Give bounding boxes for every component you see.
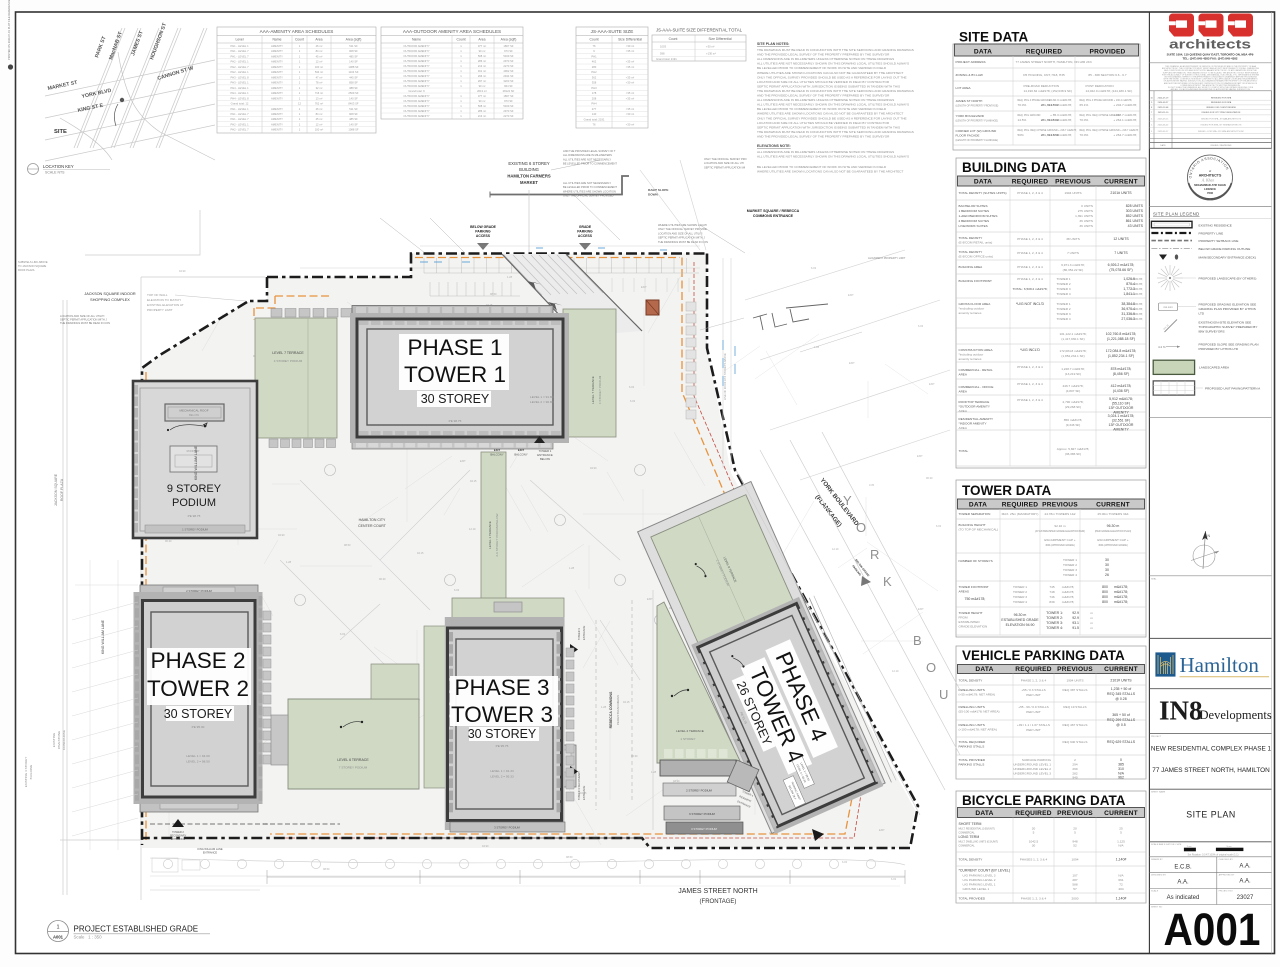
svg-text:ONLY THE OFFICIAL SURVEY PROVI: ONLY THE OFFICIAL SURVEY PROVIDED [563,194,614,198]
svg-text:UNDERGROUND LEVEL 1: UNDERGROUND LEVEL 1 [1013,763,1051,767]
svg-text:<30 m²: <30 m² [626,44,635,48]
svg-text:(>100 m&#178; NET AREA): (>100 m&#178; NET AREA) [959,728,997,732]
svg-text:<35 m²: <35 m² [626,107,635,111]
svg-text:377 m²: 377 m² [478,94,486,98]
svg-text:SHEET NO: SHEET NO [1151,907,1162,909]
svg-text:800: 800 [1102,595,1108,599]
svg-text:2973 SF: 2973 SF [503,59,514,63]
svg-text:5: 5 [1151,125,1152,127]
svg-text:TOWER 1: TOWER 1 [1057,277,1071,281]
svg-text:1094: 1094 [1072,858,1079,862]
svg-text:MARKET: MARKET [520,180,538,185]
svg-text:30 STOREY: 30 STOREY [421,392,490,406]
svg-text:2: 2 [1074,758,1076,762]
svg-text:amenity terraces: amenity terraces [959,357,982,361]
svg-text:ARCHITECTS: ARCHITECTS [1199,174,1222,178]
svg-text:LEVEL 2 TERRACE: LEVEL 2 TERRACE [676,729,704,733]
svg-text:PROJECT ESTABLISHED GRADE: PROJECT ESTABLISHED GRADE [74,925,199,934]
svg-text:BE LEVELLED PRIOR TO COMMENCEM: BE LEVELLED PRIOR TO COMMENCEMENT [563,162,617,166]
svg-text:(32,551 SF): (32,551 SF) [1112,419,1130,423]
svg-text:TOTAL: 6,508.2 m&#178;: TOTAL: 6,508.2 m&#178; [1013,287,1048,291]
svg-text:A001: A001 [53,935,64,940]
svg-text:0 UNITS: 0 UNITS [1081,204,1093,208]
svg-text:FLOOR FACADE: FLOOR FACADE [956,134,980,138]
svg-text:TOWER HEIGHT: TOWER HEIGHT [959,611,983,615]
svg-text:PROPOSED SLOPE SEE GRADING PLA: PROPOSED SLOPE SEE GRADING PLAN [1199,343,1259,347]
svg-text:45 m²: 45 m² [316,54,323,58]
svg-text:REISSUED FOR SPA: REISSUED FOR SPA [1211,96,1232,99]
svg-text:DWELLING UNITS: DWELLING UNITS [959,723,985,727]
svg-text:THE DRAWINGS MUST BE READ IN C: THE DRAWINGS MUST BE READ IN CONJUNCTION… [757,48,914,52]
svg-text:30: 30 [1105,568,1109,572]
svg-text:297 m²: 297 m² [478,79,486,83]
svg-text:828 UNITS: 828 UNITS [1126,204,1144,208]
svg-text:30: 30 [1105,563,1109,567]
svg-text:TOTAL PROVIDED: TOTAL PROVIDED [959,897,986,901]
svg-text:BE LEVELLED PRIOR TO COMMENCEM: BE LEVELLED PRIOR TO COMMENCEMENT [563,185,617,189]
svg-text:+99 / 1.1 / 1.07 STALLS: +99 / 1.1 / 1.07 STALLS [1017,723,1050,727]
svg-text:5: 5 [1074,831,1076,835]
svg-text:TOWER 3: TOWER 3 [1063,568,1077,572]
svg-text:BACHELOR SUITES: BACHELOR SUITES [959,204,988,208]
svg-text:TOWER 1: TOWER 1 [1063,558,1077,562]
svg-text:TOTAL DENSITY: TOTAL DENSITY [959,250,983,254]
svg-text:100 m²: 100 m² [315,65,323,69]
svg-text:m&#178;: m&#178; [1114,585,1128,589]
svg-text:12.19: 12.19 [832,547,839,551]
svg-text:LEVEL 7 TERRACE: LEVEL 7 TERRACE [591,376,595,404]
svg-text:PROPERTY LIMIT: PROPERTY LIMIT [147,308,173,312]
svg-text:1 BEDROOM SUITES: 1 BEDROOM SUITES [959,209,990,213]
svg-text:EXIT: EXIT [518,448,525,452]
svg-text:7606: 7606 [1207,191,1213,195]
svg-text:76: 76 [593,123,596,127]
svg-text:14.5%: 14.5% [1018,118,1027,122]
svg-text:TEL: (347) 845-4383 FAX: (347: TEL: (347) 845-4383 FAX: (347) 845-4382 [1183,57,1238,61]
svg-text:TOWER 3: TOWER 3 [1013,595,1027,599]
svg-text:7: 7 [1151,112,1152,114]
svg-text:TOWER 2: TOWER 2 [1057,307,1071,311]
svg-text:THE DRAWINGS MUST BE READ IN C: THE DRAWINGS MUST BE READ IN CON [60,321,110,325]
svg-text:PROJECT ADDRESS: PROJECT ADDRESS [956,60,986,64]
svg-text:Grand total: 9: Grand total: 9 [408,89,425,93]
svg-text:5: 5 [1033,831,1035,835]
svg-text:Grand total: 2191: Grand total: 2191 [584,117,605,121]
svg-text:30: 30 [1105,558,1109,562]
svg-text:8: 8 [1151,107,1152,109]
svg-text:TOWER 3: TOWER 3 [451,702,553,727]
svg-text:SITE PLAN LEGEND: SITE PLAN LEGEND [1153,212,1200,217]
svg-text:MOHAMMAD ATIF KHAN: MOHAMMAD ATIF KHAN [1194,183,1226,187]
svg-text:ALL DIMENSIONS ARE IN MILLIMET: ALL DIMENSIONS ARE IN MILLIMETERS UNLESS… [757,98,894,102]
svg-text:PH1 - LEVEL 7: PH1 - LEVEL 7 [230,54,249,58]
svg-text:JS-AAA-SUITE SIZE DIFFERENTIAL: JS-AAA-SUITE SIZE DIFFERENTIAL TOTAL [656,28,743,33]
svg-text:TOWER SEPARATION: TOWER SEPARATION [959,512,991,516]
svg-text:1+DEN BEDROOM SUITES: 1+DEN BEDROOM SUITES [959,214,998,218]
svg-text:85 - 368 SECTION 6.6 - 6.7: 85 - 368 SECTION 6.6 - 6.7 [1088,73,1126,77]
svg-text:REBECCA COMMONS: REBECCA COMMONS [609,691,613,728]
svg-text:TOTAL DENSITY: TOTAL DENSITY [959,858,983,862]
svg-text:(E-B'COM RETAIL units): (E-B'COM RETAIL units) [959,241,993,245]
svg-text:PH3 - LEVEL 8: PH3 - LEVEL 8 [230,75,249,79]
svg-text:(TO TOP OF MECHANICAL): (TO TOP OF MECHANICAL) [959,528,999,532]
svg-text:REQ. PKG. REQ 4 PHASE GROUND: REQ. PKG. REQ 4 PHASE GROUND + 218.7 m&#… [1080,129,1139,132]
svg-text:GRADE: GRADE [579,225,592,229]
svg-text:94.90: 94.90 [482,844,489,848]
svg-text:6.03: 6.03 [630,399,636,403]
svg-text:SITE DATA: SITE DATA [959,30,1028,45]
svg-text:30: 30 [1032,844,1036,848]
svg-text:2023-11-10: 2023-11-10 [1158,112,1169,114]
svg-text:(<55 m&#178; NET AREA): (<55 m&#178; NET AREA) [959,693,996,697]
svg-text:OUTDOOR AMENITY: OUTDOOR AMENITY [403,49,429,53]
svg-text:TOWER 3:: TOWER 3: [1046,621,1063,625]
svg-text:6.03: 6.03 [629,385,635,389]
svg-text:PHASE 1, 2, 3 & 4: PHASE 1, 2, 3 & 4 [1017,237,1043,241]
svg-text:m&#178;: m&#178; [1114,600,1128,604]
svg-text:1,235 + 50 of: 1,235 + 50 of [1111,687,1132,691]
svg-text:Count: Count [589,38,598,42]
svg-text:AND THE PROVIDED LEGAL SURVEY: AND THE PROVIDED LEGAL SURVEY OF THE PRO… [757,134,890,138]
svg-text:U: U [939,687,948,702]
svg-text:ALL UTILITIES ARE NOT NECESSAR: ALL UTILITIES ARE NOT NECESSARILY SHOWN … [757,155,909,159]
svg-text:4 STOREY PODIUM: 4 STOREY PODIUM [598,375,602,404]
svg-text:+ 128.5 m&#178;: + 128.5 m&#178; [1048,133,1072,137]
svg-text:TOTAL REQUIRED: TOTAL REQUIRED [959,740,987,744]
svg-text:+130 m²: +130 m² [706,52,716,56]
svg-text:AND THE PROVIDED LEGAL SURVEY: AND THE PROVIDED LEGAL SURVEY OF THE PRO… [757,53,890,57]
svg-text:*U/G INCL'D: *U/G INCL'D [1020,348,1040,352]
svg-text:REQ 940 STALLS: REQ 940 STALLS [1063,740,1088,744]
svg-text:(PER GRADE ELEVATION PLAN): (PER GRADE ELEVATION PLAN) [1095,530,1132,533]
svg-text:OUTDOOR AMENITY: OUTDOOR AMENITY [403,84,429,88]
svg-text:ESCARPMENT CAP +: ESCARPMENT CAP + [1097,538,1128,542]
svg-text:Y: Y [843,493,852,508]
svg-text:ACCESS: ACCESS [578,234,593,238]
svg-text:TOPOGRAPHIC SURVEY PREPARED BY: TOPOGRAPHIC SURVEY PREPARED BY [1199,325,1258,329]
svg-text:CONSTRUCTION AREA: CONSTRUCTION AREA [959,348,994,352]
svg-text:Grand total: 2191: Grand total: 2191 [656,57,677,61]
svg-text:14,022.0 m&#178; (144,180.1 SF: 14,022.0 m&#178; (144,180.1 SF) [1086,89,1133,93]
svg-text:2101# UNITS: 2101# UNITS [1110,679,1132,683]
svg-text:DATA: DATA [975,810,993,817]
svg-text:ZONING & BY-LAW: ZONING & BY-LAW [956,73,983,77]
svg-text:13 m²: 13 m² [316,96,323,100]
svg-text:DESIGNED BY: DESIGNED BY [1151,875,1166,877]
svg-text:REQUIRED: REQUIRED [1002,501,1038,508]
svg-text:EXIT: EXIT [879,828,885,832]
svg-text:PRE-ROAD DEDUCTION: PRE-ROAD DEDUCTION [1024,84,1060,88]
svg-text:92.9: 92.9 [1072,616,1079,620]
svg-text:EXIT: EXIT [460,459,466,463]
svg-text:973 SF: 973 SF [504,99,513,103]
svg-text:GROUND LEVEL 1: GROUND LEVEL 1 [963,887,990,891]
svg-text:28122 SF: 28122 SF [503,89,515,93]
svg-text:REQ 345 STALLS: REQ 345 STALLS [1107,692,1136,696]
svg-text:CURRENT: CURRENT [1104,810,1138,817]
svg-text:m&#178;: m&#178; [1131,277,1144,281]
svg-text:Area (sqft): Area (sqft) [346,38,362,42]
svg-text:U/G PARKING LEVEL 2: U/G PARKING LEVEL 2 [963,878,996,882]
svg-text:@ 0.28: @ 0.28 [1115,697,1126,701]
svg-text:TOWER 2: TOWER 2 [147,676,249,701]
svg-text:ENTRANCE: ENTRANCE [582,625,586,640]
svg-text:2944 SF: 2944 SF [503,74,514,78]
svg-text:REQ. PKG 4 PHASE GROUND + 130: REQ. PKG 4 PHASE GROUND + 130.4 m&#178; [1080,99,1133,102]
svg-text:AMENITY: AMENITY [271,128,283,132]
svg-text:277: 277 [592,107,597,111]
svg-text:4962 SF: 4962 SF [503,69,514,73]
svg-text:LOCATION AND SIZE OF ALL UTI: LOCATION AND SIZE OF ALL UTI [704,161,744,165]
svg-text:46 m²: 46 m² [316,107,323,111]
svg-text:70.0%: 70.0% [1018,103,1027,107]
svg-text:m&#178;: m&#178; [1131,312,1144,316]
svg-text:BUILDING DATA: BUILDING DATA [962,160,1067,175]
svg-text:<30 m²: <30 m² [626,123,635,127]
svg-text:m&#178;: m&#178; [1131,302,1144,306]
svg-text:RESIDENTIAL AMENITY: RESIDENTIAL AMENITY [959,417,994,421]
svg-text:MULT. DWELLING UNITS (0.5/UNIT: MULT. DWELLING UNITS (0.5/UNIT) [959,841,999,844]
svg-text:358: 358 [592,81,597,85]
svg-text:LOCATION KEY: LOCATION KEY [43,164,74,169]
svg-text:2 BEDROOM SUITES: 2 BEDROOM SUITES [959,219,990,223]
svg-text:AMENITY: AMENITY [271,44,283,48]
svg-text:70.0%: 70.0% [1080,118,1089,122]
svg-text:EXIT: EXIT [918,607,924,611]
svg-text:EXIT: EXIT [848,293,854,297]
svg-text:2 STOREY PODIUM: 2 STOREY PODIUM [686,789,712,793]
svg-text:ROOFTOP TERRACE: ROOFTOP TERRACE [959,400,990,404]
svg-text:12.19: 12.19 [892,669,899,673]
svg-text:ISSUED FOR SPA - BY SRM ARCHIT: ISSUED FOR SPA - BY SRM ARCHITECTS [1201,124,1242,127]
svg-text:PH2 - LEVEL 1: PH2 - LEVEL 1 [230,70,249,74]
svg-text:861 UNITS: 861 UNITS [1126,219,1144,223]
svg-text:JS-AAA-SUITE SIZE: JS-AAA-SUITE SIZE [591,29,634,34]
svg-text:Name: Name [412,38,421,42]
svg-text:Count: Count [295,38,304,42]
svg-text:ELEVATION 94.90: ELEVATION 94.90 [1006,623,1035,627]
svg-text:76: 76 [593,44,596,48]
svg-text:AAA-AMENITY AREA SCHEDULES: AAA-AMENITY AREA SCHEDULES [260,29,334,34]
svg-text:m: m [1091,626,1094,630]
svg-text:ONLY THE OFFICIAL SURVEY PROVI: ONLY THE OFFICIAL SURVEY PROVIDED SHOULD… [757,116,907,120]
svg-text:SCALE NTS: SCALE NTS [45,171,65,175]
svg-text:AMENITY: AMENITY [271,86,283,90]
svg-text:50%: 50% [1018,133,1024,137]
svg-text:3,024.1 m&#178;: 3,024.1 m&#178; [1108,414,1135,418]
svg-text:OUTDOOR AMENITY: OUTDOOR AMENITY [403,104,429,108]
svg-text:FROM: FROM [959,616,969,620]
svg-text:98.50: 98.50 [490,292,497,296]
svg-text:72: 72 [1119,883,1123,887]
svg-text:94.15: 94.15 [417,551,424,555]
svg-text:SHEET NAME: SHEET NAME [1151,791,1166,794]
svg-text:878 m&#178;: 878 m&#178; [1111,367,1132,371]
svg-text:LOCATION AND SIZE OF ALL UTILI: LOCATION AND SIZE OF ALL UTILITIES SHOUL… [757,80,890,84]
svg-text:<30 m²: <30 m² [626,81,635,85]
svg-text:REQUIRED: REQUIRED [1015,666,1051,673]
svg-text:1904 UNITS: 1904 UNITS [1064,191,1081,195]
svg-text:9 STOREY PODIUM: 9 STOREY PODIUM [689,812,715,816]
svg-text:46 m²: 46 m² [316,44,323,48]
svg-text:852 UNITS: 852 UNITS [1126,214,1144,218]
svg-text:26: 26 [1105,573,1109,577]
svg-text:AMENITY: AMENITY [1113,428,1129,432]
svg-text:2023-09-15: 2023-09-15 [1158,118,1169,120]
svg-text:(55,110 SF): (55,110 SF) [1112,402,1130,406]
svg-text:3 STOREY PODIUM: 3 STOREY PODIUM [494,826,520,830]
svg-text:5 cm: 5 cm [1227,846,1232,848]
svg-text:PH4 - LEVEL 1: PH4 - LEVEL 1 [230,91,249,95]
svg-text:VEHICLE PARKING DATA: VEHICLE PARKING DATA [962,648,1125,663]
svg-text:43 UNITS: 43 UNITS [1128,224,1144,228]
svg-text:2000: 2000 [1072,897,1079,901]
svg-text:GROSS FLOOR AREA: GROSS FLOOR AREA [959,302,992,306]
svg-text:*including outdoor: *including outdoor [959,353,984,357]
svg-text:92.10 m: 92.10 m [1054,524,1066,528]
svg-text:LOCATION AND SIZE OF ALL UTILI: LOCATION AND SIZE OF ALL UTILITI [658,231,703,235]
svg-text:BUILDING: BUILDING [519,167,539,172]
svg-text:DATA: DATA [969,501,987,508]
svg-text:102,760.8 m&#178;: 102,760.8 m&#178; [1106,332,1137,336]
svg-text:(8,456 SF): (8,456 SF) [1113,372,1130,376]
svg-text:SITE PLAN: SITE PLAN [1186,810,1235,820]
svg-text:1 STOREY PODIUM: 1 STOREY PODIUM [182,528,208,532]
svg-text:LEVEL 1 = 91.80: LEVEL 1 = 91.80 [530,395,554,399]
svg-text:ISSUED / REVISIONS: ISSUED / REVISIONS [1211,145,1232,147]
svg-text:EXIT: EXIT [929,382,935,386]
svg-text:SEPTIC PERMIT APPLICATION WITH: SEPTIC PERMIT APPLICATION WITH J [60,318,107,322]
svg-text:PER UNIT: PER UNIT [1026,728,1041,732]
svg-text:KING WILLIAM LANE: KING WILLIAM LANE [101,619,105,654]
svg-text:OUTDOOR AMENITY: OUTDOOR AMENITY [403,44,429,48]
svg-text:AND THE PROVIDED LEGAL SURVEY: AND THE PROVIDED LEGAL SURVEY OF T [563,149,616,153]
svg-text:UNDERGROUND LEVEL 2: UNDERGROUND LEVEL 2 [1013,767,1051,771]
svg-text:TOWER 4: TOWER 4 [1013,600,1027,604]
svg-text:PHASE 3: PHASE 3 [454,675,549,700]
svg-text:+ 130.3 m&#178;: + 130.3 m&#178; [1048,98,1072,102]
svg-text:PROPOSED UNIT PAVING/PATTERN A: PROPOSED UNIT PAVING/PATTERN A [1205,386,1261,390]
svg-text:PARKING: PARKING [475,230,491,234]
svg-text:TOWER 3: TOWER 3 [577,628,581,640]
svg-text:TOWER 2: TOWER 2 [172,830,184,834]
svg-text:SEPTIC PERMIT APPLICATION WITH: SEPTIC PERMIT APPLICATION WITH J [658,236,705,240]
svg-text:<30 m²: <30 m² [626,112,635,116]
svg-text:AMENITY: AMENITY [271,91,283,95]
svg-text:92.9: 92.9 [1072,611,1079,615]
svg-text:ONLY THE OFFICIAL SURVEY PRO: ONLY THE OFFICIAL SURVEY PRO [704,157,747,161]
svg-text:PH1 - LEVEL 1: PH1 - LEVEL 1 [230,44,249,48]
svg-text:ALL UTILITIES ARE NOT NECESSAR: ALL UTILITIES ARE NOT NECESSARILY SHOWN … [757,103,909,107]
svg-text:EXIT: EXIT [494,448,501,452]
svg-text:Count: Count [456,38,465,42]
svg-text:HAMILTON FARMERS: HAMILTON FARMERS [507,174,551,179]
svg-text:REQ 299 STALLS: REQ 299 STALLS [1107,718,1136,722]
svg-text:AREA: AREA [959,373,968,377]
svg-text:96.30 m: 96.30 m [1014,613,1027,617]
svg-text:661: 661 [1118,878,1123,882]
svg-text:10: 10 [1151,97,1153,99]
svg-text:KING WILLIAM LANE: KING WILLIAM LANE [194,445,198,480]
svg-text:14,190.62 m&#178; (152,638.9 S: 14,190.62 m&#178; (152,638.9 SF) [1024,89,1073,93]
svg-text:6.03: 6.03 [891,877,897,881]
svg-text:PROPERTY LINE: PROPERTY LINE [1199,232,1224,236]
svg-text:REQ. PKG. REQ 4 PHASE GROUND: REQ. PKG. REQ 4 PHASE GROUND + 218.7 m&#… [1018,129,1077,132]
svg-text:+ 264.1 m&#178;: + 264.1 m&#178; [1113,118,1137,122]
svg-text:65.1%: 65.1% [1080,103,1089,107]
svg-text:404: 404 [1118,887,1123,891]
svg-text:(LENGTH OF PROPERTY FLANKAGE): (LENGTH OF PROPERTY FLANKAGE) [956,120,999,123]
svg-text:DATA: DATA [975,666,993,673]
svg-text:PREVIOUS: PREVIOUS [1042,501,1078,508]
svg-text:98.50: 98.50 [566,855,573,859]
svg-text:746: 746 [1049,595,1054,599]
svg-text:2101# UNITS: 2101# UNITS [1110,191,1132,195]
svg-text:PAVESTONE: PAVESTONE [57,731,61,749]
svg-text:286 m²: 286 m² [478,59,486,63]
svg-text:COMMERCIAL - RETAIL: COMMERCIAL - RETAIL [959,368,993,372]
svg-text:508 m²: 508 m² [478,54,486,58]
svg-text:908 SF: 908 SF [349,112,358,116]
svg-text:PHASE 2: PHASE 2 [150,648,245,673]
svg-text:4.2 %: 4.2 % [1158,345,1166,349]
svg-text:280: 280 [592,65,597,69]
svg-text:WHERE UTILITIES ARE SHOWN LOCA: WHERE UTILITIES ARE SHOWN LOCATIONS CAN … [757,170,904,174]
svg-text:Area: Area [478,38,485,42]
svg-text:EXISTING: EXISTING [52,732,56,747]
svg-text:PH3 - LEVEL 1: PH3 - LEVEL 1 [230,81,249,85]
svg-text:7 STOREY PODIUM: 7 STOREY PODIUM [339,766,368,770]
svg-text:1867 SF: 1867 SF [503,44,514,48]
svg-text:140 SF: 140 SF [349,96,358,100]
svg-text:2273 SF: 2273 SF [503,114,514,118]
svg-text:94.90: 94.90 [590,466,597,470]
svg-text:A.A.: A.A. [1239,864,1251,870]
svg-text:Size Differential: Size Differential [618,38,642,42]
svg-text:461 m²: 461 m² [478,69,486,73]
svg-text:TOTAL DENSITY (SUITES UNITS): TOTAL DENSITY (SUITES UNITS) [959,191,1007,195]
svg-text:511 SF: 511 SF [349,44,358,48]
svg-text:<35 m²: <35 m² [626,91,635,95]
svg-text:m: m [1091,616,1094,620]
svg-text:ESCARPMENT CAP +: ESCARPMENT CAP + [1044,538,1075,542]
svg-text:Size Differential: Size Differential [708,37,731,41]
svg-text:BE LEVELLED PRIOR TO COMMENCEM: BE LEVELLED PRIOR TO COMMENCEMENT OF WOR… [757,66,887,70]
svg-text:REQ. PKG GROUND: REQ. PKG GROUND [1018,114,1041,117]
svg-text:BICYCLE PARKING DATA: BICYCLE PARKING DATA [962,793,1126,808]
svg-text:PHASE 1, 2, 3 & 4: PHASE 1, 2, 3 & 4 [1021,897,1047,901]
svg-text:908 SF: 908 SF [349,49,358,53]
svg-text:A001: A001 [1164,904,1261,955]
svg-text:856 m&#178;: 856 m&#178; [1064,418,1083,422]
svg-text:TOWER 1: TOWER 1 [404,362,506,387]
svg-text:485 SF: 485 SF [349,117,358,121]
svg-text:AMENITY: AMENITY [271,49,283,53]
svg-text:GRADING PLAN PROVIDED BY LITHO: GRADING PLAN PROVIDED BY LITHOS [1199,307,1256,311]
svg-text:1003: 1003 [660,45,666,49]
svg-text:PHASE 1, 2, 3 & 4: PHASE 1, 2, 3 & 4 [1017,191,1043,195]
svg-text:IN8: IN8 [1159,696,1203,726]
svg-text:1104 SF: 1104 SF [349,70,359,74]
svg-text:PH4 - LEVEL 8: PH4 - LEVEL 8 [230,96,249,100]
svg-text:REISSUED FOR SPA: REISSUED FOR SPA [1211,101,1232,104]
svg-text:Count: Count [669,37,678,41]
svg-text:K: K [883,574,892,589]
svg-text:LEVEL 7 TERRACE: LEVEL 7 TERRACE [272,351,304,355]
svg-text:LTD: LTD [1199,312,1205,316]
svg-text:98.50: 98.50 [344,543,351,547]
svg-text:94.15: 94.15 [623,700,630,704]
